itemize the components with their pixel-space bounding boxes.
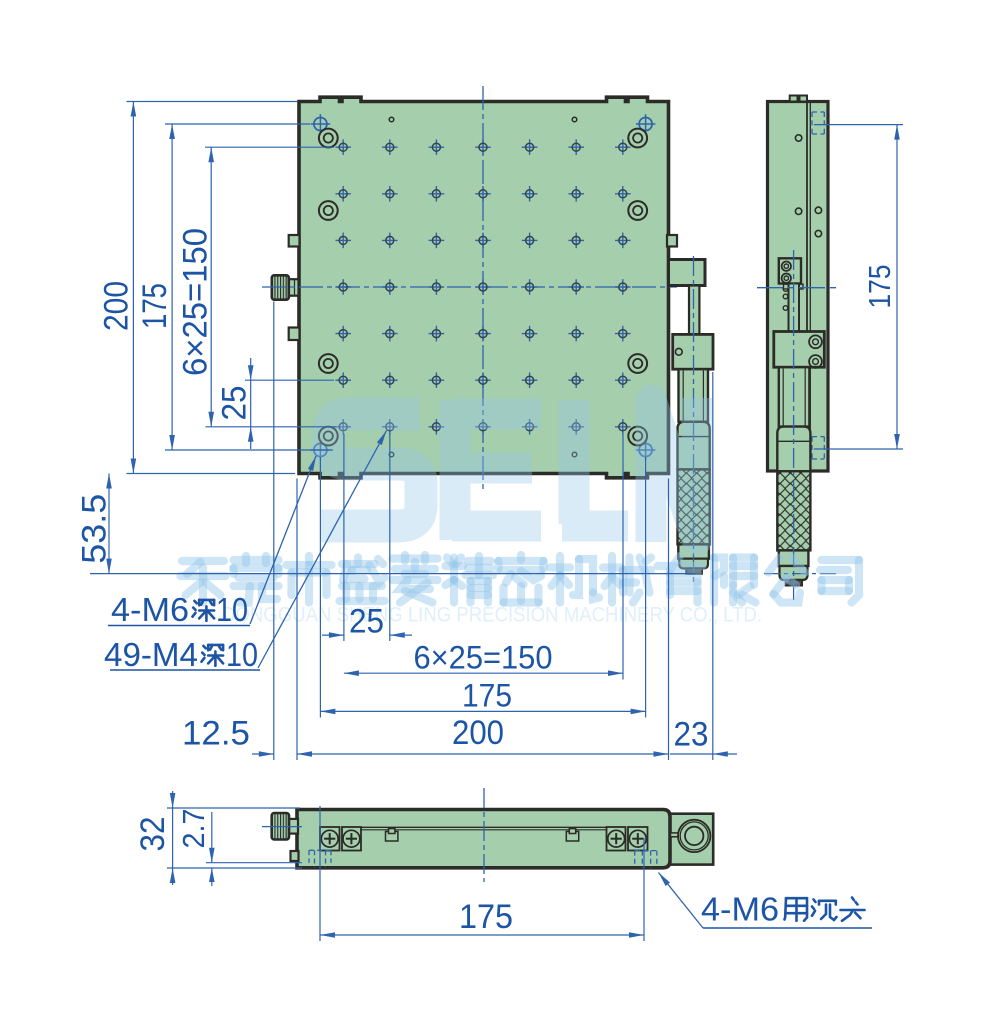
svg-text:49-M4: 49-M4 [104, 636, 198, 673]
svg-text:6×25=150: 6×25=150 [414, 640, 553, 676]
svg-text:4-M6: 4-M6 [701, 891, 779, 928]
svg-text:32: 32 [134, 817, 172, 852]
svg-text:25: 25 [349, 603, 384, 641]
svg-text:10: 10 [216, 591, 248, 628]
svg-text:175: 175 [459, 898, 513, 936]
svg-text:23: 23 [674, 716, 709, 754]
svg-text:6×25=150: 6×25=150 [177, 228, 215, 376]
svg-text:4-M6: 4-M6 [111, 591, 189, 628]
svg-text:10: 10 [226, 636, 258, 673]
svg-text:175: 175 [462, 678, 512, 714]
svg-text:12.5: 12.5 [182, 715, 250, 753]
svg-text:2.7: 2.7 [176, 809, 211, 849]
svg-text:175: 175 [136, 283, 174, 329]
svg-text:175: 175 [862, 265, 897, 309]
svg-text:200: 200 [452, 714, 504, 752]
svg-text:200: 200 [98, 281, 136, 331]
svg-text:53.5: 53.5 [76, 494, 114, 564]
svg-text:25: 25 [216, 386, 254, 421]
svg-text:DONGGUAN SHENG LING PRECISION: DONGGUAN SHENG LING PRECISION MACHINERY … [222, 604, 762, 627]
